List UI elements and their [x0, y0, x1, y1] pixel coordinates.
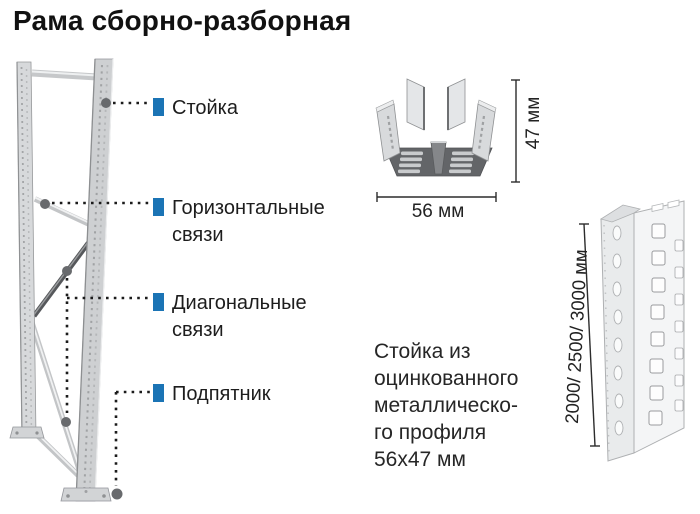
- marker-horizontal-brace: [40, 199, 50, 209]
- upright-left: [17, 62, 36, 437]
- dimension-height-label: 47 мм: [523, 94, 545, 152]
- diagram-page: Рама сборно-разборная: [0, 0, 700, 514]
- callout-stoyka: Стойка: [153, 95, 342, 122]
- dimension-width-label: 56 мм: [402, 201, 474, 223]
- label-bullet: [153, 198, 164, 216]
- callout-label-podpyatnik: Подпятник: [172, 381, 342, 408]
- callout-label-diagonal: Диагональные связи: [172, 290, 342, 344]
- dimension-height-line: [511, 80, 520, 182]
- label-bullet: [153, 384, 164, 402]
- top-beam: [32, 72, 97, 78]
- page-title: Рама сборно-разборная: [13, 5, 573, 37]
- marker-upright: [101, 98, 111, 108]
- callout-label-horizontal: Горизонтальные связи: [172, 195, 342, 249]
- label-bullet: [153, 98, 164, 116]
- callout-podpyatnik: Подпятник: [153, 381, 342, 408]
- callout-label-stoyka: Стойка: [172, 95, 342, 122]
- cross-section-illustration: [363, 66, 520, 216]
- upright-right: [76, 59, 113, 501]
- callout-diagonal: Диагональные связи: [153, 290, 342, 344]
- base-plate-left: [10, 427, 44, 438]
- diagonal-brace-dark: [34, 237, 92, 316]
- marker-footplate: [112, 489, 123, 500]
- marker-diagonal-upper: [62, 266, 72, 276]
- description-text: Стойка из оцинкованного металлическо- го…: [374, 338, 539, 473]
- marker-diagonal-lower: [61, 417, 71, 427]
- base-plate-right: [61, 488, 111, 501]
- label-bullet: [153, 293, 164, 311]
- callout-horizontal: Горизонтальные связи: [153, 195, 342, 249]
- frame-illustration: [0, 55, 165, 514]
